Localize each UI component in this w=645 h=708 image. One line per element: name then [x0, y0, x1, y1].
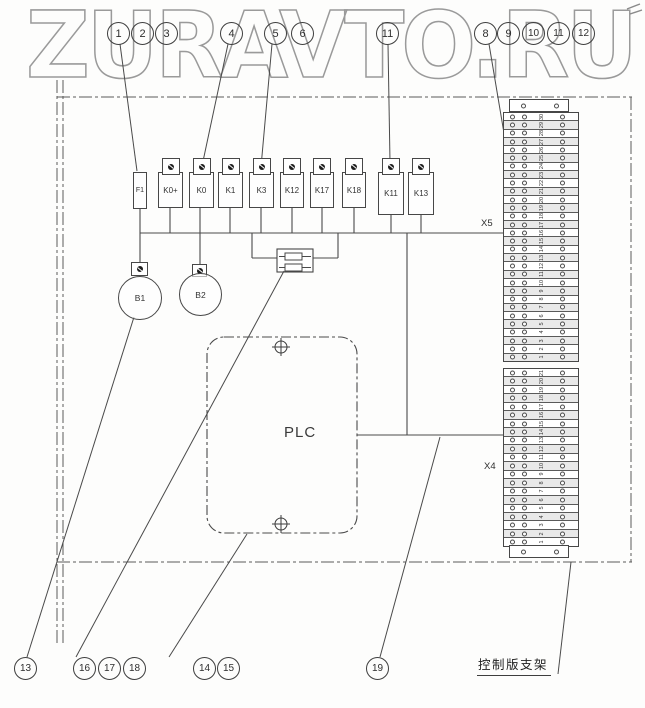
terminal-hole	[560, 131, 565, 136]
plc-cover-outline	[207, 337, 357, 533]
terminal-hole	[510, 355, 515, 360]
terminal-hole	[522, 396, 527, 401]
terminal-hole	[560, 263, 565, 268]
terminal-hole	[510, 322, 515, 327]
terminal-hole	[510, 272, 515, 277]
terminal-hole	[510, 463, 515, 468]
leader-callout-13	[27, 317, 134, 657]
terminal-hole	[522, 172, 527, 177]
screw-icon	[199, 164, 205, 170]
terminal-hole	[522, 114, 527, 119]
terminal-hole	[522, 288, 527, 293]
terminal-hole	[510, 172, 515, 177]
terminal-hole	[522, 413, 527, 418]
terminal-hole	[560, 489, 565, 494]
terminal-hole	[522, 355, 527, 360]
terminal-hole	[522, 280, 527, 285]
terminal-hole	[522, 523, 527, 528]
callout-17: 17	[98, 657, 121, 680]
terminal-hole	[510, 288, 515, 293]
terminal-hole	[560, 222, 565, 227]
terminal-hole	[560, 297, 565, 302]
terminal-row: 1	[504, 353, 578, 361]
relay-terminal-tab	[345, 158, 363, 175]
terminal-hole	[560, 497, 565, 502]
terminal-hole	[510, 297, 515, 302]
terminal-hole	[510, 346, 515, 351]
motor-b1: B1	[118, 276, 162, 320]
terminal-hole	[522, 156, 527, 161]
terminal-hole	[560, 480, 565, 485]
terminal-hole	[522, 346, 527, 351]
callout-6: 6	[291, 22, 314, 45]
terminal-hole	[510, 497, 515, 502]
terminal-hole	[560, 346, 565, 351]
terminal-hole	[560, 156, 565, 161]
relay-terminal-tab	[313, 158, 331, 175]
relay-label: K17	[315, 186, 329, 195]
callout-16: 16	[73, 657, 96, 680]
relay-terminal-tab	[382, 158, 400, 175]
terminal-hole	[510, 472, 515, 477]
terminal-hole	[522, 272, 527, 277]
terminal-hole	[560, 379, 565, 384]
terminal-hole	[522, 421, 527, 426]
plc-screw-bottom	[272, 515, 290, 533]
plc-screw-top	[272, 338, 290, 356]
terminal-hole	[560, 189, 565, 194]
terminal-hole	[554, 103, 559, 108]
terminal-hole	[522, 122, 527, 127]
terminal-hole	[560, 139, 565, 144]
terminal-hole	[522, 489, 527, 494]
terminal-hole	[510, 147, 515, 152]
bracket-label: 控制版支架	[477, 654, 551, 676]
screw-icon	[319, 164, 325, 170]
terminal-hole	[522, 239, 527, 244]
leader-callout-1	[120, 44, 137, 171]
terminal-hole	[522, 430, 527, 435]
terminal-hole	[510, 230, 515, 235]
terminal-hole	[560, 247, 565, 252]
strip-x4-end-cap	[509, 545, 569, 558]
terminal-hole	[510, 330, 515, 335]
relay-k1: K1	[218, 172, 243, 208]
leader-callout-19	[380, 437, 440, 657]
terminal-hole	[522, 497, 527, 502]
terminal-hole	[560, 205, 565, 210]
callout-4: 4	[220, 22, 243, 45]
fuse-element-2	[285, 264, 302, 271]
terminal-hole	[560, 540, 565, 545]
relay-label: K13	[414, 189, 428, 198]
terminal-hole	[510, 131, 515, 136]
terminal-hole	[510, 255, 515, 260]
relay-label: K0	[197, 186, 207, 195]
terminal-hole	[560, 272, 565, 277]
motor-label: B1	[135, 293, 145, 303]
strip-label-x5: X5	[481, 218, 493, 229]
terminal-hole	[522, 338, 527, 343]
wiring-diagram: ZURAVTO.RU	[0, 0, 645, 708]
terminal-hole	[522, 189, 527, 194]
terminal-number: 1	[539, 349, 545, 365]
relay-terminal-tab	[283, 158, 301, 175]
leader-callout-16	[76, 271, 284, 657]
terminal-hole	[560, 531, 565, 536]
terminal-hole	[522, 205, 527, 210]
terminal-hole	[522, 446, 527, 451]
terminal-hole	[510, 164, 515, 169]
terminal-hole	[522, 455, 527, 460]
relay-k0plus: K0+	[158, 172, 183, 208]
terminal-hole	[510, 523, 515, 528]
callout-10: 10	[522, 22, 545, 45]
terminal-hole	[560, 438, 565, 443]
terminal-hole	[560, 355, 565, 360]
relay-label: K18	[347, 186, 361, 195]
terminal-hole	[560, 313, 565, 318]
callout-2: 2	[131, 22, 154, 45]
terminal-hole	[560, 164, 565, 169]
leader-callout-5	[261, 44, 272, 167]
terminal-hole	[560, 288, 565, 293]
screw-icon	[351, 164, 357, 170]
terminal-hole	[510, 455, 515, 460]
terminal-hole	[522, 214, 527, 219]
relay-label: K12	[285, 186, 299, 195]
terminal-hole	[560, 506, 565, 511]
terminal-hole	[510, 214, 515, 219]
relay-terminal-tab	[162, 158, 180, 175]
terminal-hole	[510, 396, 515, 401]
terminal-hole	[510, 189, 515, 194]
terminal-hole	[510, 531, 515, 536]
terminal-hole	[510, 313, 515, 318]
callout-1: 1	[107, 22, 130, 45]
terminal-hole	[560, 181, 565, 186]
terminal-hole	[510, 338, 515, 343]
terminal-hole	[560, 197, 565, 202]
leader-callout-4	[202, 44, 228, 166]
terminal-hole	[560, 214, 565, 219]
terminal-hole	[510, 438, 515, 443]
terminal-hole	[521, 549, 526, 554]
terminal-hole	[522, 147, 527, 152]
terminal-hole	[510, 387, 515, 392]
callout-3: 3	[155, 22, 178, 45]
screw-icon	[418, 164, 424, 170]
terminal-hole	[510, 480, 515, 485]
motor-label: B2	[195, 290, 205, 300]
relay-terminal-tab	[412, 158, 430, 175]
strip-label-x4: X4	[484, 461, 496, 472]
callout-9: 9	[497, 22, 520, 45]
terminal-hole	[510, 156, 515, 161]
terminal-hole	[522, 247, 527, 252]
terminal-hole	[560, 455, 565, 460]
terminal-hole	[510, 379, 515, 384]
relay-label: K0+	[163, 186, 177, 195]
terminal-hole	[560, 430, 565, 435]
terminal-hole	[522, 222, 527, 227]
fuse-block	[277, 249, 313, 272]
relay-terminal-tab	[253, 158, 271, 175]
terminal-hole	[522, 164, 527, 169]
terminal-hole	[560, 523, 565, 528]
relay-label: K11	[384, 189, 398, 198]
terminal-hole	[510, 114, 515, 119]
terminal-hole	[510, 404, 515, 409]
terminal-hole	[522, 305, 527, 310]
relay-k11: K11	[378, 172, 404, 215]
terminal-hole	[522, 438, 527, 443]
terminal-hole	[560, 114, 565, 119]
relay-label: K3	[257, 186, 267, 195]
terminal-hole	[522, 330, 527, 335]
callout-5: 5	[264, 22, 287, 45]
relay-k0: K0	[189, 172, 214, 208]
terminal-hole	[510, 280, 515, 285]
terminal-hole	[560, 514, 565, 519]
terminal-hole	[522, 463, 527, 468]
terminal-hole	[560, 305, 565, 310]
terminal-hole	[510, 446, 515, 451]
screw-icon	[228, 164, 234, 170]
screw-icon	[168, 164, 174, 170]
terminal-hole	[560, 172, 565, 177]
terminal-hole	[560, 421, 565, 426]
terminal-hole	[522, 387, 527, 392]
terminal-hole	[522, 322, 527, 327]
terminal-hole	[510, 222, 515, 227]
callout-8: 8	[474, 22, 497, 45]
terminal-hole	[510, 506, 515, 511]
terminal-strip-x4: 212019181716151413121110987654321	[503, 368, 579, 547]
callout-12: 12	[572, 22, 595, 45]
motor-b2: B2	[179, 273, 222, 316]
screw-icon	[259, 164, 265, 170]
leader-callout-14	[169, 534, 247, 657]
terminal-hole	[522, 230, 527, 235]
terminal-hole	[510, 489, 515, 494]
terminal-hole	[522, 379, 527, 384]
relay-k3: K3	[249, 172, 274, 208]
relay-k12: K12	[280, 172, 304, 208]
screw-icon	[137, 266, 143, 272]
terminal-hole	[560, 463, 565, 468]
callout-11a: 11	[376, 22, 399, 45]
terminal-hole	[560, 147, 565, 152]
terminal-hole	[522, 480, 527, 485]
terminal-hole	[522, 404, 527, 409]
relay-terminal-tab	[222, 158, 240, 175]
leader-bracket-label	[558, 562, 571, 674]
relay-label: K1	[226, 186, 236, 195]
terminal-hole	[521, 103, 526, 108]
terminal-hole	[510, 413, 515, 418]
terminal-hole	[560, 404, 565, 409]
terminal-hole	[560, 255, 565, 260]
relay-k13: K13	[408, 172, 434, 215]
terminal-hole	[560, 280, 565, 285]
terminal-hole	[510, 197, 515, 202]
terminal-hole	[560, 413, 565, 418]
fuse-f1: F1	[133, 172, 147, 209]
terminal-hole	[510, 205, 515, 210]
terminal-hole	[560, 446, 565, 451]
terminal-hole	[522, 506, 527, 511]
terminal-hole	[510, 305, 515, 310]
terminal-hole	[554, 549, 559, 554]
terminal-hole	[510, 247, 515, 252]
relay-k18: K18	[342, 172, 366, 208]
screw-icon	[388, 164, 394, 170]
terminal-hole	[510, 139, 515, 144]
terminal-hole	[522, 370, 527, 375]
fuse-element-1	[285, 253, 302, 260]
terminal-hole	[522, 197, 527, 202]
terminal-hole	[560, 330, 565, 335]
terminal-hole	[522, 540, 527, 545]
terminal-hole	[510, 540, 515, 545]
terminal-hole	[522, 255, 527, 260]
terminal-hole	[522, 472, 527, 477]
terminal-hole	[522, 263, 527, 268]
terminal-hole	[560, 338, 565, 343]
terminal-hole	[522, 531, 527, 536]
callout-15: 15	[217, 657, 240, 680]
terminal-hole	[522, 313, 527, 318]
terminal-hole	[510, 430, 515, 435]
screw-icon	[289, 164, 295, 170]
terminal-hole	[510, 181, 515, 186]
terminal-hole	[510, 239, 515, 244]
relay-terminal-tab	[193, 158, 211, 175]
terminal-hole	[522, 139, 527, 144]
corner-scribble-mark	[627, 4, 642, 14]
terminal-hole	[510, 421, 515, 426]
terminal-strip-x5: 3029282726252423222120191817161514131211…	[503, 112, 579, 362]
callout-14: 14	[193, 657, 216, 680]
plc-label: PLC	[284, 424, 316, 441]
leader-callout-11	[388, 44, 390, 162]
terminal-hole	[560, 396, 565, 401]
terminal-hole	[560, 230, 565, 235]
terminal-hole	[560, 239, 565, 244]
callout-11b: 11	[547, 22, 570, 45]
terminal-hole	[510, 514, 515, 519]
callout-13: 13	[14, 657, 37, 680]
terminal-hole	[522, 181, 527, 186]
terminal-hole	[522, 514, 527, 519]
relay-k17: K17	[310, 172, 334, 208]
callout-18: 18	[123, 657, 146, 680]
terminal-hole	[522, 131, 527, 136]
terminal-hole	[510, 263, 515, 268]
fuse-f1-label: F1	[136, 187, 144, 194]
terminal-hole	[560, 322, 565, 327]
terminal-hole	[560, 122, 565, 127]
terminal-hole	[560, 387, 565, 392]
terminal-hole	[560, 370, 565, 375]
terminal-hole	[510, 122, 515, 127]
motor-b1-tab	[131, 262, 148, 276]
terminal-hole	[560, 472, 565, 477]
terminal-hole	[510, 370, 515, 375]
callout-19: 19	[366, 657, 389, 680]
terminal-hole	[522, 297, 527, 302]
